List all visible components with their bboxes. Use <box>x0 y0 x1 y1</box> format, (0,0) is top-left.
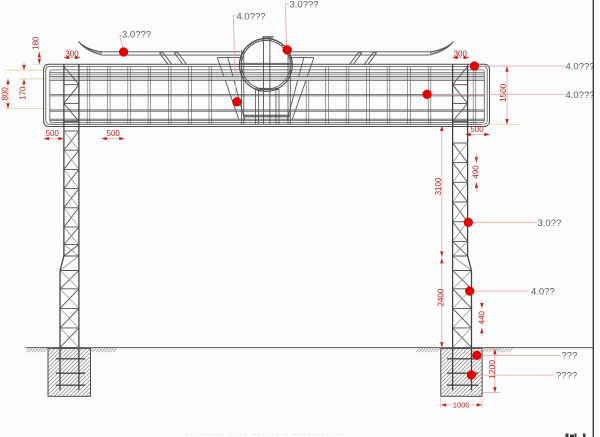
svg-text:3.0???: 3.0??? <box>290 0 319 10</box>
svg-text:1000: 1000 <box>453 401 470 410</box>
svg-text:500: 500 <box>107 129 121 138</box>
svg-text:170: 170 <box>19 86 28 100</box>
svg-text:3.0??: 3.0?? <box>538 218 562 229</box>
svg-text:3.0???: 3.0??? <box>122 30 151 41</box>
svg-text:180: 180 <box>32 36 41 50</box>
svg-text:300: 300 <box>65 50 79 59</box>
svg-text:4.0??: 4.0?? <box>531 287 555 298</box>
svg-text:300: 300 <box>454 50 468 59</box>
svg-text:4.0???: 4.0??? <box>237 12 266 23</box>
svg-text:490: 490 <box>472 165 481 179</box>
svg-text:440: 440 <box>478 310 487 324</box>
svg-text:-- -- --- - -- --- -- - ----: -- -- --- - -- --- -- - ---- --- -- <box>185 430 344 437</box>
svg-text:4.0???: 4.0??? <box>566 90 595 101</box>
svg-text:????: ???? <box>556 371 577 382</box>
svg-text:4.0???: 4.0??? <box>566 62 595 73</box>
svg-text:2400: 2400 <box>437 288 446 306</box>
svg-text:???: ??? <box>562 351 578 362</box>
svg-text:3100: 3100 <box>434 177 443 195</box>
svg-text:1500: 1500 <box>498 83 508 102</box>
svg-text:500: 500 <box>470 125 484 134</box>
svg-text:1200: 1200 <box>487 360 497 379</box>
svg-text:500: 500 <box>46 129 60 138</box>
svg-text:800: 800 <box>0 87 9 101</box>
